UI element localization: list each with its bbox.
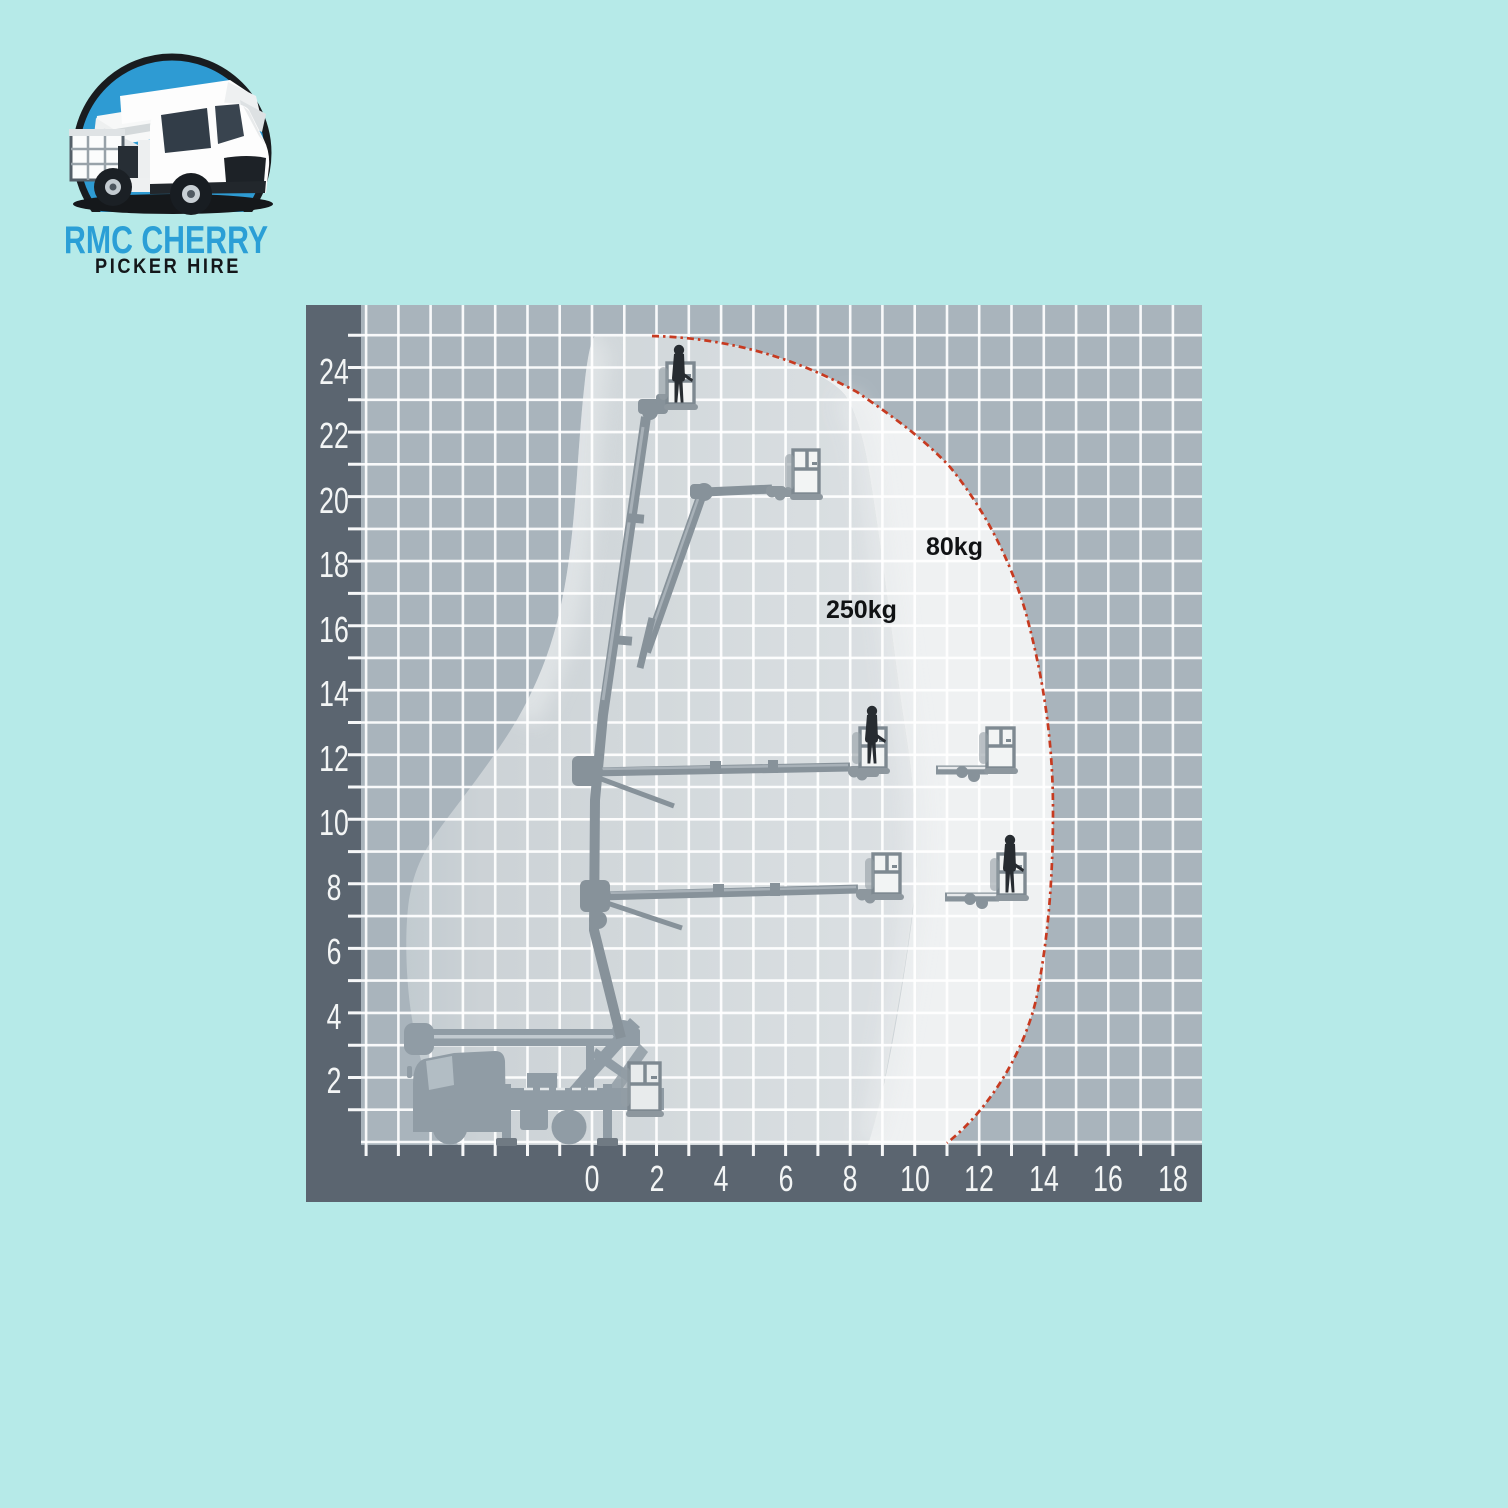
svg-text:2: 2 — [650, 1158, 665, 1199]
svg-text:16: 16 — [319, 609, 349, 650]
svg-text:24: 24 — [319, 351, 349, 392]
svg-text:14: 14 — [319, 673, 349, 714]
svg-text:16: 16 — [1093, 1158, 1123, 1199]
svg-text:10: 10 — [319, 802, 349, 843]
svg-text:8: 8 — [843, 1158, 858, 1199]
svg-text:22: 22 — [319, 415, 349, 456]
svg-text:250kg: 250kg — [826, 596, 897, 624]
svg-text:12: 12 — [964, 1158, 994, 1199]
svg-text:4: 4 — [714, 1158, 729, 1199]
svg-text:6: 6 — [327, 931, 342, 972]
svg-text:0: 0 — [585, 1158, 600, 1199]
svg-text:10: 10 — [900, 1158, 930, 1199]
svg-text:6: 6 — [779, 1158, 794, 1199]
svg-text:80kg: 80kg — [926, 533, 983, 561]
svg-text:PICKER HIRE: PICKER HIRE — [95, 255, 241, 278]
svg-text:20: 20 — [319, 480, 349, 521]
svg-text:2: 2 — [327, 1060, 342, 1101]
svg-text:12: 12 — [319, 738, 349, 779]
svg-text:8: 8 — [327, 867, 342, 908]
svg-text:18: 18 — [319, 544, 349, 585]
svg-text:4: 4 — [327, 996, 342, 1037]
svg-text:18: 18 — [1158, 1158, 1188, 1199]
svg-text:14: 14 — [1029, 1158, 1059, 1199]
